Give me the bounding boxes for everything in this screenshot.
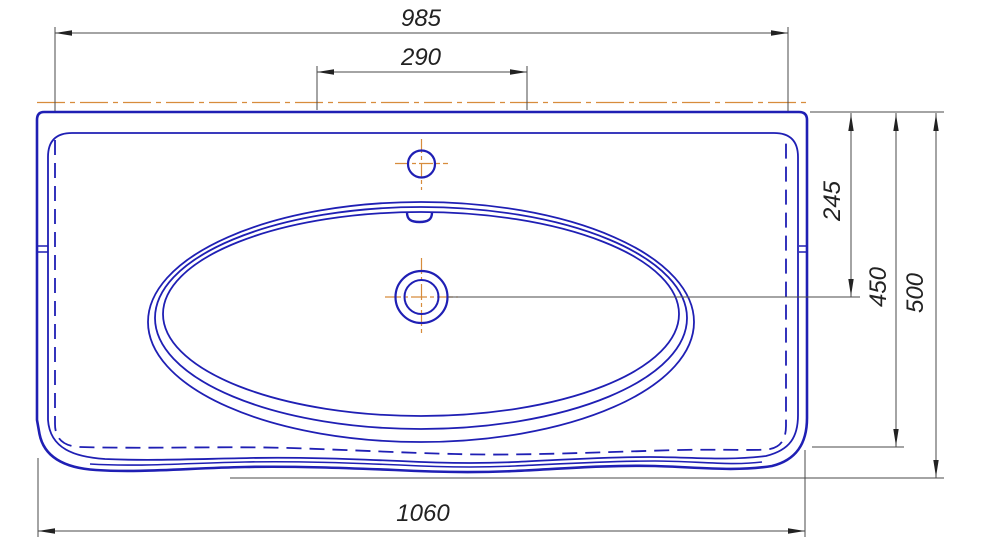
dim-450-label: 450 xyxy=(865,266,892,307)
dim-290-lines xyxy=(317,66,527,110)
dim-290-arrow-left xyxy=(317,69,334,74)
dimension-450: 450 xyxy=(812,113,904,447)
dim-1060-arrow-right xyxy=(788,528,805,533)
dim-500-label: 500 xyxy=(902,272,929,313)
dim-245-arrow-top xyxy=(848,114,853,131)
dim-500-arrow-top xyxy=(933,114,938,131)
left-edge-notch xyxy=(37,246,48,252)
dim-245-label: 245 xyxy=(819,180,846,222)
overflow-slot xyxy=(407,213,432,223)
dim-245-arrow-bottom xyxy=(848,279,853,296)
dimension-290: 290 xyxy=(317,44,527,110)
dim-290-arrow-right xyxy=(510,69,527,74)
dim-450-arrow-bottom xyxy=(893,429,898,446)
dimension-1060: 1060 xyxy=(38,450,805,537)
dim-290-label: 290 xyxy=(400,44,442,71)
dim-1060-label: 1060 xyxy=(396,500,450,527)
dim-985-arrow-left xyxy=(55,30,72,35)
dim-450-arrow-top xyxy=(893,114,898,131)
sink-inner-contour xyxy=(48,133,798,463)
dim-500-arrow-bottom xyxy=(933,460,938,477)
dim-985-label: 985 xyxy=(401,5,442,32)
dim-1060-arrow-left xyxy=(38,528,55,533)
dim-985-arrow-right xyxy=(771,30,788,35)
drawing-canvas: 985 290 1060 245 xyxy=(0,0,982,541)
washbasin-technical-drawing: 985 290 1060 245 xyxy=(0,0,982,541)
